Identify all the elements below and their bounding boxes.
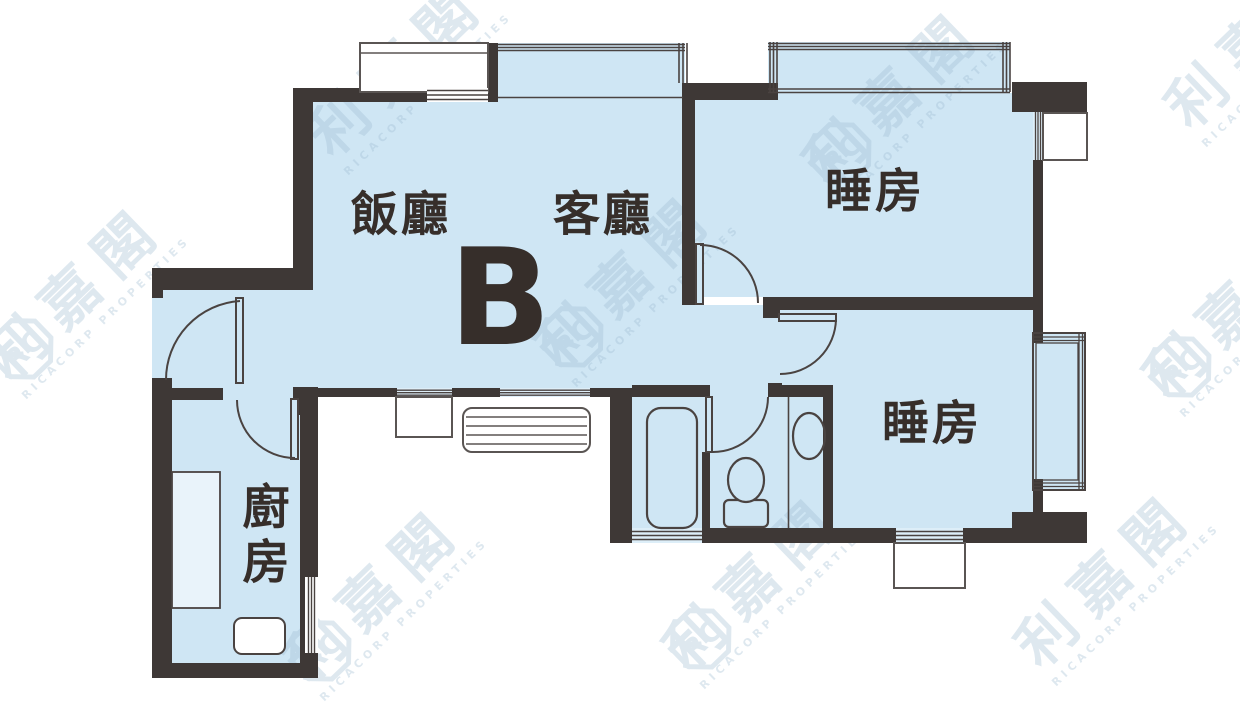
- toilet-tank: [724, 500, 768, 527]
- door-leaf-bathroom: [706, 397, 712, 452]
- door-arc-kitchen: [237, 400, 295, 458]
- floor-detail-layer: [0, 0, 1240, 720]
- door-arc-bathroom: [712, 397, 768, 452]
- louvre-box: [463, 408, 590, 452]
- kitchen-counter: [172, 472, 220, 608]
- door-leaf-bedroom-lower: [779, 314, 836, 321]
- door-arc-bedroom-lower: [780, 319, 836, 374]
- door-arc-entrance: [166, 301, 240, 380]
- door-leaf-kitchen: [291, 399, 298, 459]
- bedroom-upper-side-window: [1033, 112, 1087, 160]
- toilet: [728, 458, 764, 502]
- ac-box-living: [396, 397, 452, 437]
- bay-window-bedroom-lower: [1033, 333, 1085, 490]
- kitchen-side-window: [305, 577, 318, 653]
- bathtub: [647, 408, 697, 528]
- wash-basin: [793, 413, 825, 459]
- stove: [234, 618, 285, 654]
- door-leaf-entrance: [236, 298, 243, 383]
- ac-box-bedroom-lower: [894, 543, 965, 588]
- floor-plan: 利嘉閣 RICACORP PROPERTIES RC 利嘉閣 RICACORP …: [0, 0, 1240, 720]
- door-arc-bedroom-upper: [700, 245, 758, 303]
- door-leaf-bedroom-upper: [696, 244, 703, 304]
- ac-box-bedroom-upper: [1043, 113, 1087, 160]
